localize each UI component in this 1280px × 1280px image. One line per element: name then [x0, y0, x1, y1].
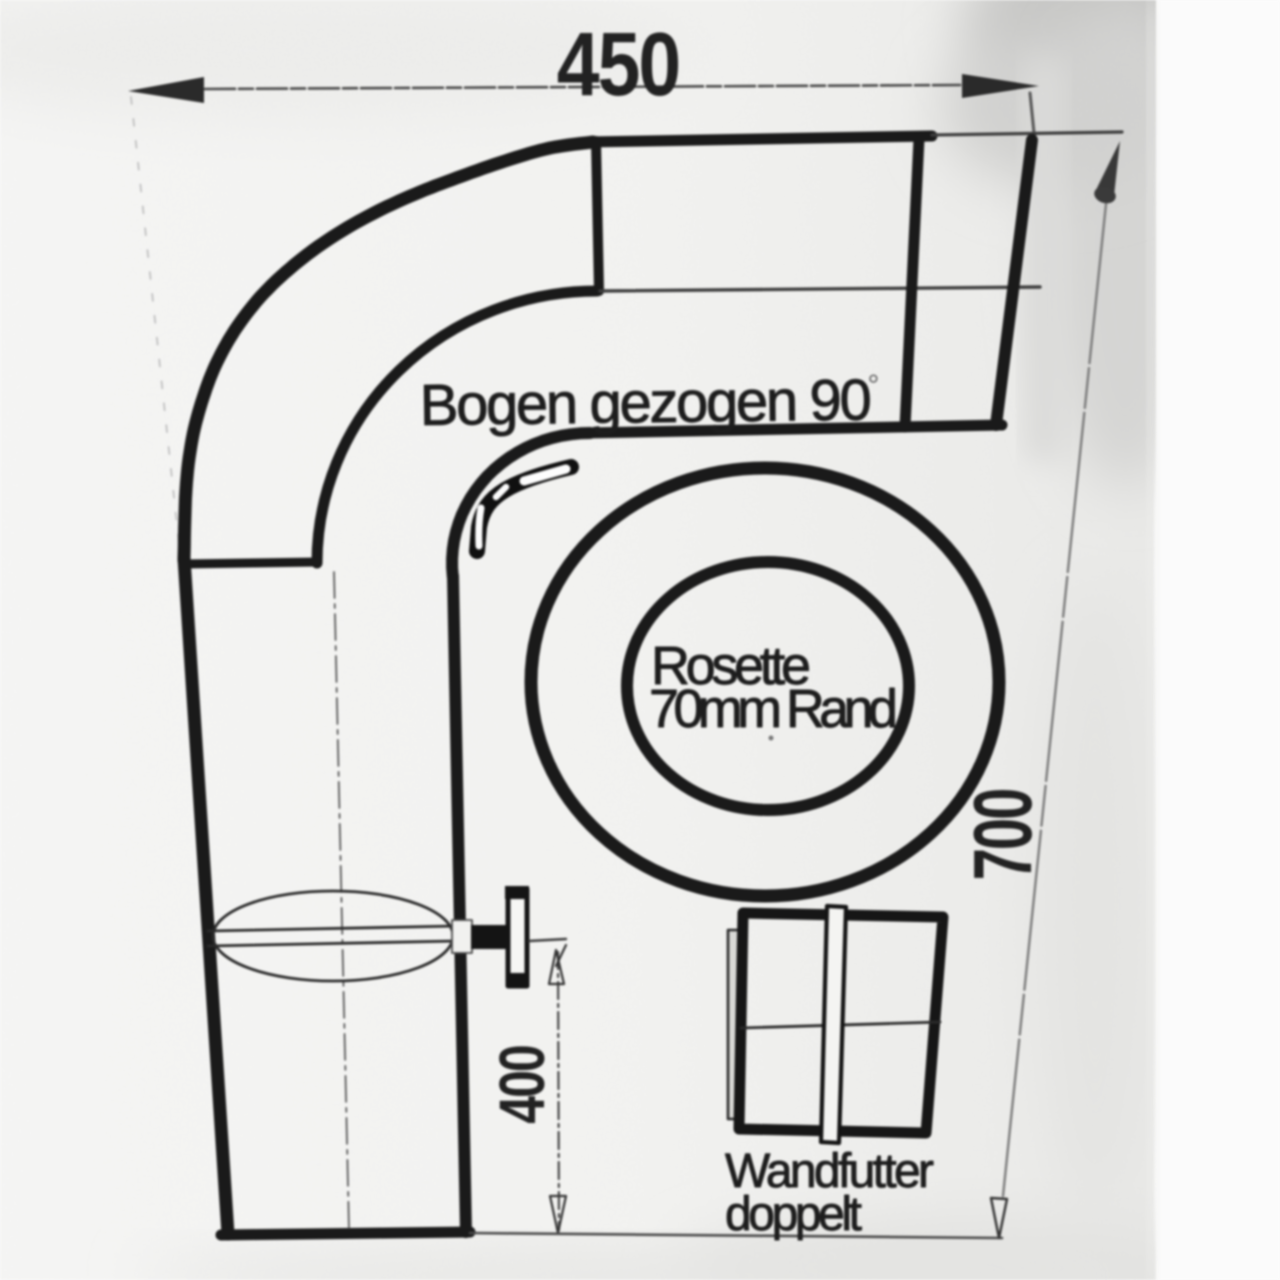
svg-text:Bogen gezogen 90: Bogen gezogen 90 [419, 367, 872, 438]
svg-text:450: 450 [557, 13, 679, 114]
svg-text:°: ° [867, 369, 879, 402]
svg-text:700: 700 [958, 790, 1049, 881]
svg-text:doppelt: doppelt [725, 1188, 862, 1241]
svg-text:70mm Rand: 70mm Rand [649, 679, 898, 739]
svg-text:400: 400 [487, 1046, 558, 1124]
